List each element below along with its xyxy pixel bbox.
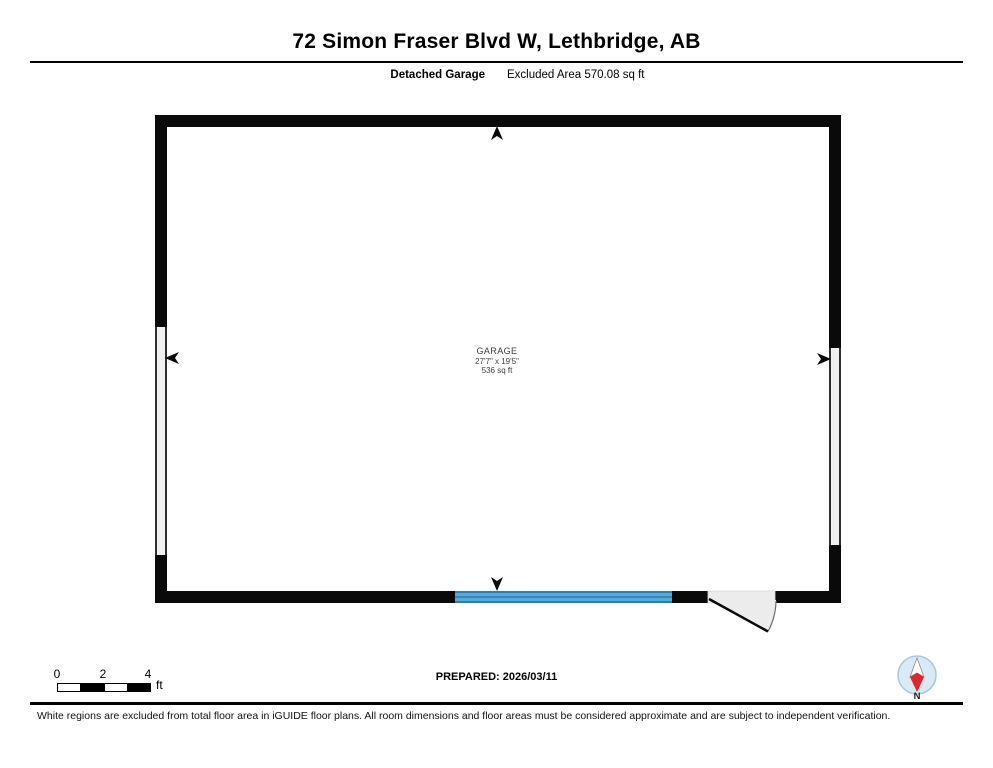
page-title: 72 Simon Fraser Blvd W, Lethbridge, AB xyxy=(0,30,993,54)
floor-name-label: Detached Garage xyxy=(390,69,485,81)
south-wall-arrow-icon xyxy=(491,577,503,591)
room-area: 536 sq ft xyxy=(397,366,597,375)
wall-west-upper xyxy=(155,115,167,327)
garage-door xyxy=(455,591,672,603)
scale-segment xyxy=(58,684,80,691)
floor-plan-page: 72 Simon Fraser Blvd W, Lethbridge, AB D… xyxy=(0,0,993,768)
footer-divider xyxy=(30,702,963,705)
scale-bar-segments xyxy=(57,683,151,692)
room-dimensions: 27'7" x 19'5" xyxy=(397,357,597,366)
door-opening xyxy=(708,591,775,603)
prepared-date: PREPARED: 2026/03/11 xyxy=(0,671,993,683)
wall-east-excluded-section xyxy=(829,348,841,545)
wall-west-excluded-section xyxy=(155,327,167,555)
scale-segment xyxy=(127,684,150,691)
room-name: GARAGE xyxy=(397,346,597,357)
wall-east-upper xyxy=(829,115,841,348)
entry-door xyxy=(708,591,776,632)
wall-south-right xyxy=(775,591,841,603)
wall-south-mid xyxy=(672,591,708,603)
excluded-area-label: Excluded Area 570.08 sq ft xyxy=(507,69,644,81)
disclaimer-text: White regions are excluded from total fl… xyxy=(37,710,973,722)
wall-north xyxy=(155,115,841,127)
wall-south-left xyxy=(155,591,455,603)
header-divider xyxy=(30,61,963,63)
door-leaf xyxy=(709,599,768,632)
compass-north-label: N xyxy=(893,691,941,702)
north-wall-arrow-icon xyxy=(491,126,503,140)
scale-segment xyxy=(104,684,127,691)
garage-door-panel xyxy=(455,591,672,603)
scale-segment xyxy=(80,684,103,691)
west-wall-arrow-icon xyxy=(165,352,179,364)
door-swing-arc xyxy=(768,601,776,632)
door-swing-area xyxy=(709,600,776,632)
room-label: GARAGE 27'7" x 19'5" 536 sq ft xyxy=(397,346,597,375)
